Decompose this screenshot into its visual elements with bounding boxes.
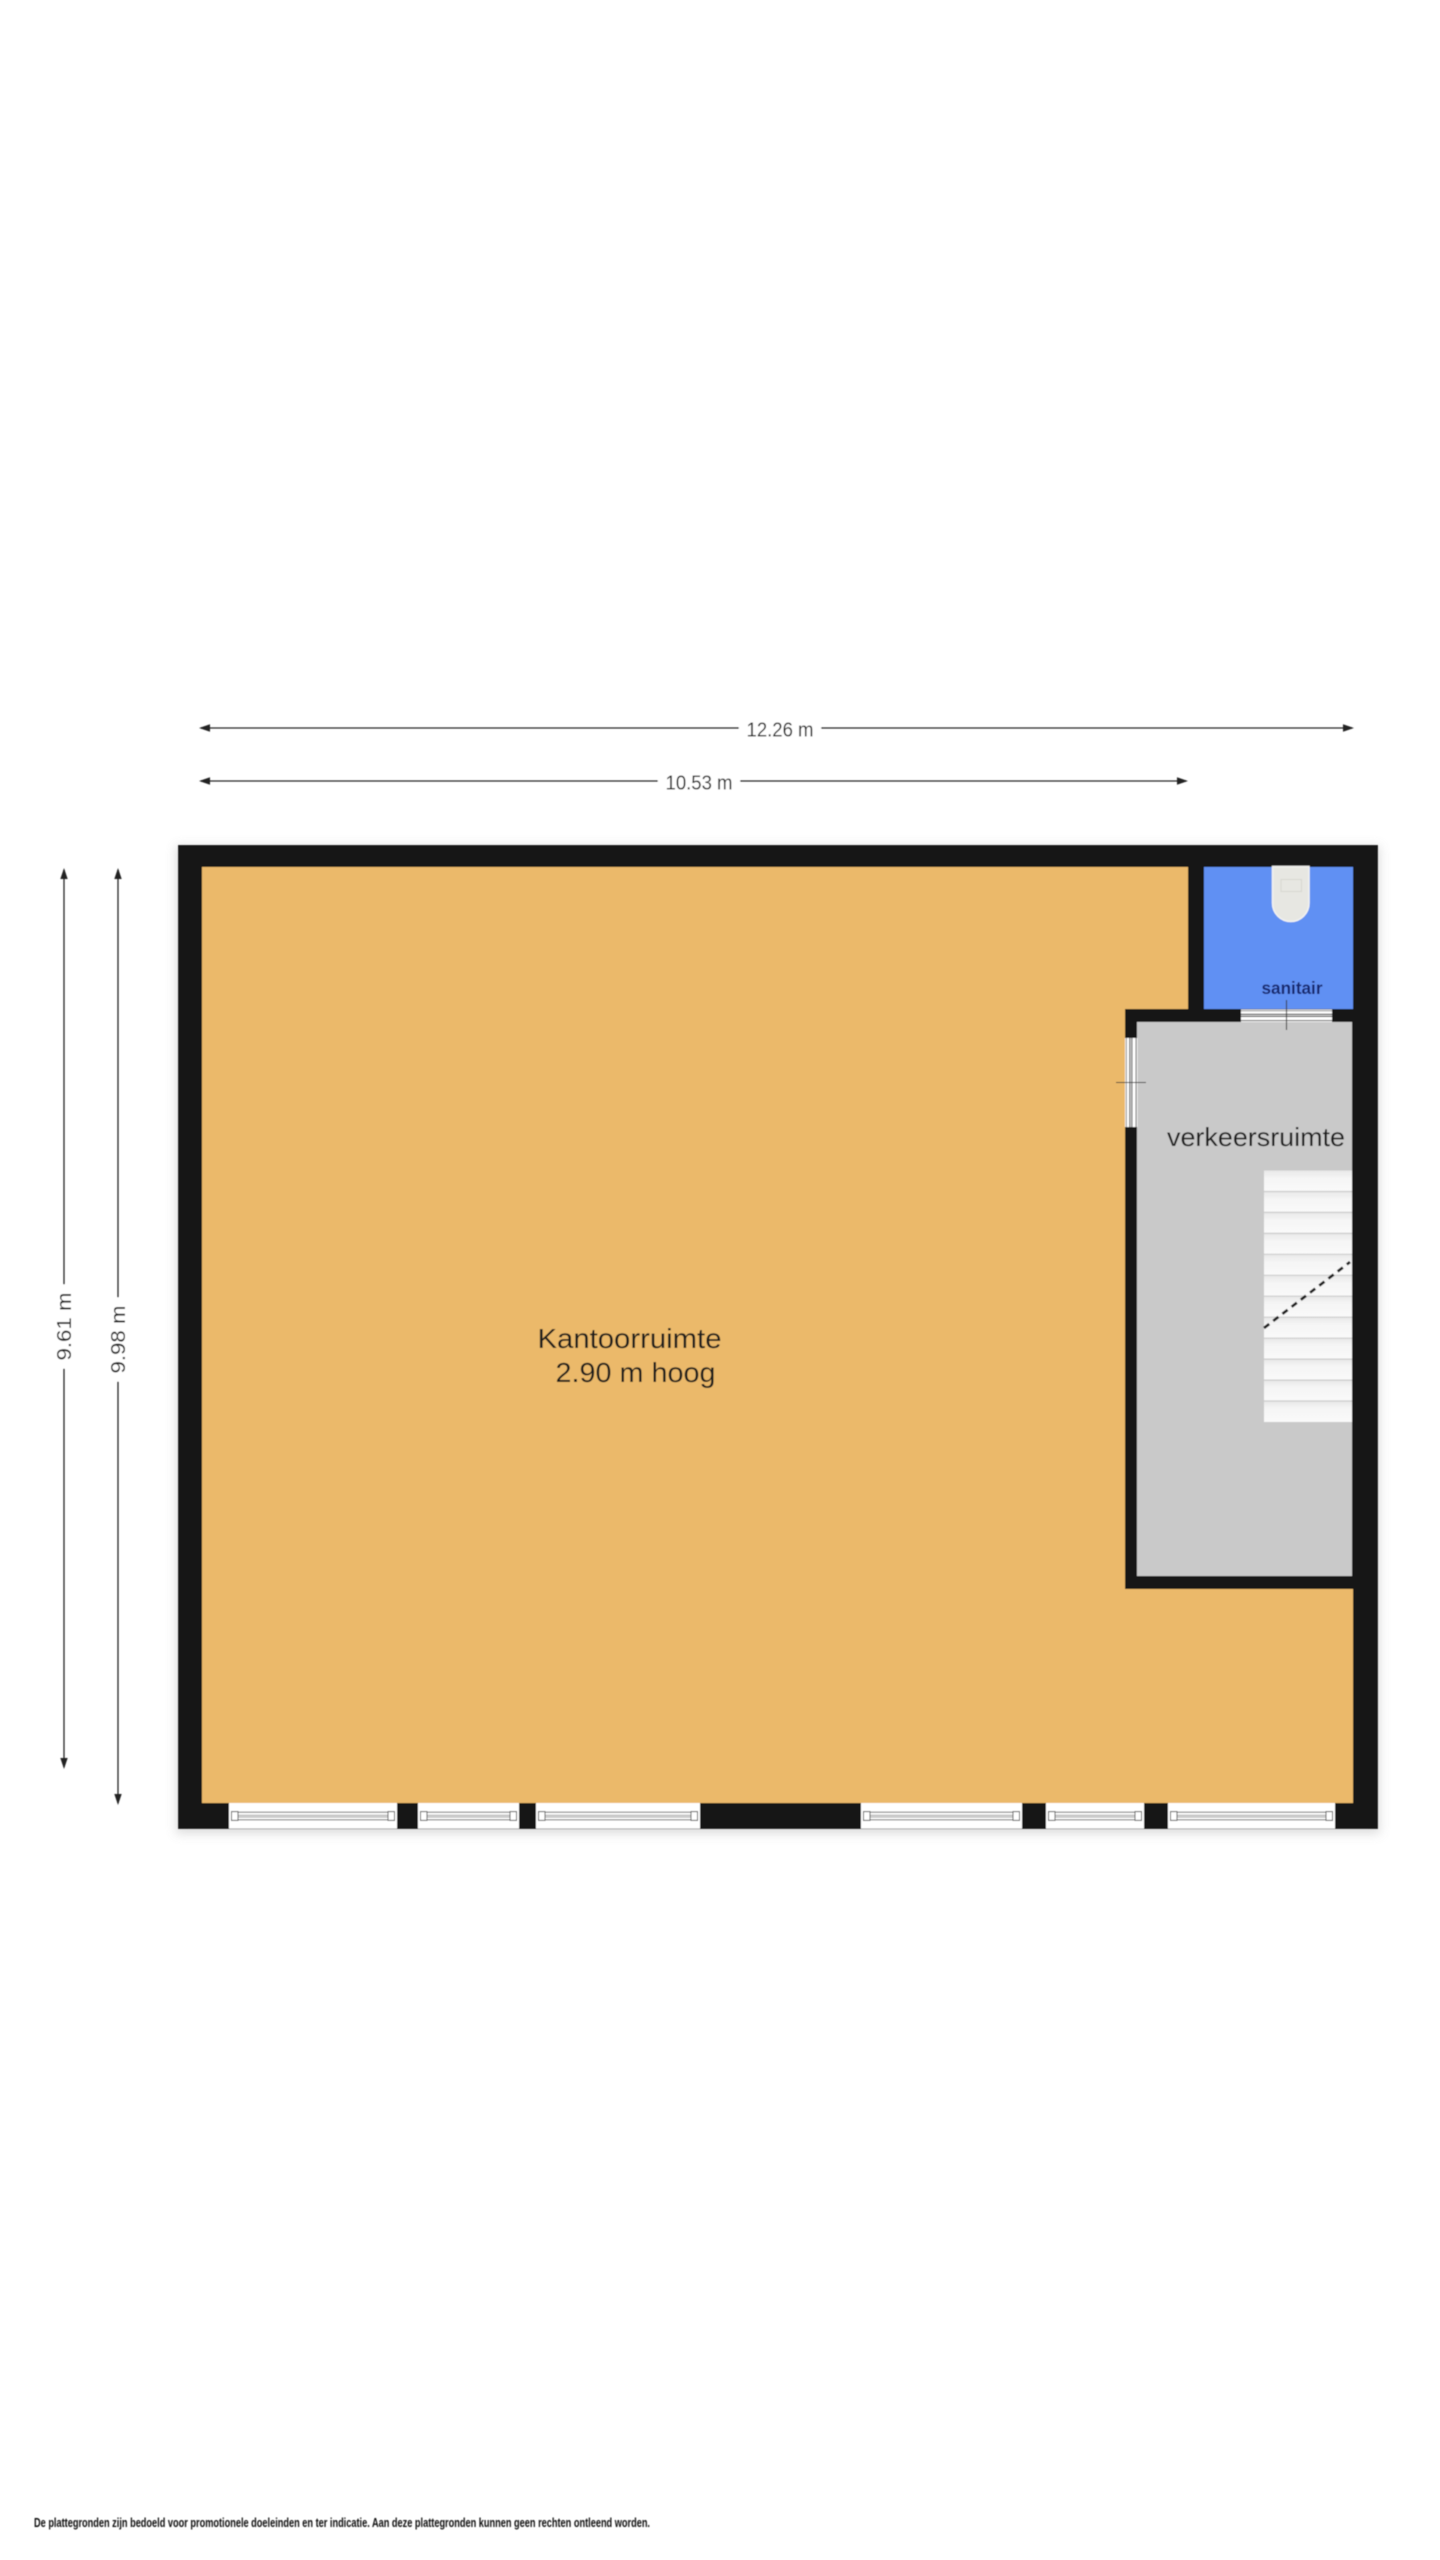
svg-text:9.61 m: 9.61 m [54,1293,76,1361]
svg-text:10.53 m: 10.53 m [666,773,733,795]
svg-text:verkeersruimte: verkeersruimte [1167,1122,1345,1152]
svg-text:9.98 m: 9.98 m [108,1306,130,1374]
svg-text:sanitair: sanitair [1262,978,1323,998]
svg-text:2.90 m hoog: 2.90 m hoog [556,1357,716,1388]
svg-text:12.26 m: 12.26 m [747,720,814,742]
svg-text:Kantoorruimte: Kantoorruimte [538,1323,722,1354]
svg-text:De plattegronden zijn bedoeld: De plattegronden zijn bedoeld voor promo… [34,2516,650,2530]
